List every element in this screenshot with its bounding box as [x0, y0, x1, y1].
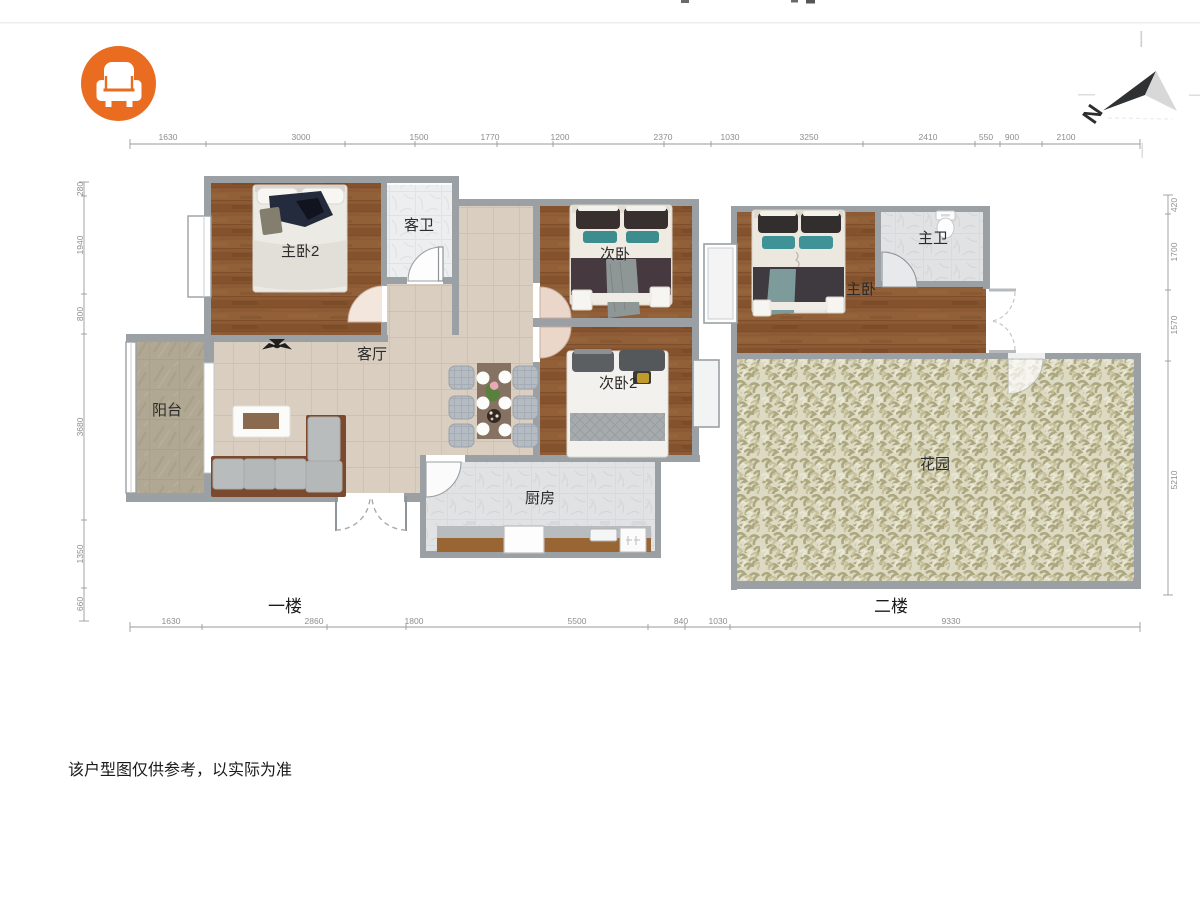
svg-text:900: 900 — [1005, 132, 1019, 142]
svg-text:1630: 1630 — [162, 616, 181, 626]
svg-text:1800: 1800 — [405, 616, 424, 626]
svg-text:次卧2: 次卧2 — [599, 375, 637, 392]
svg-text:二楼: 二楼 — [874, 597, 908, 616]
svg-text:次卧: 次卧 — [600, 246, 630, 263]
svg-text:840: 840 — [674, 616, 688, 626]
svg-text:2100: 2100 — [1057, 132, 1076, 142]
svg-text:5500: 5500 — [568, 616, 587, 626]
svg-text:3250: 3250 — [800, 132, 819, 142]
svg-text:660: 660 — [75, 597, 85, 611]
svg-text:花园: 花园 — [920, 456, 950, 473]
svg-text:阳台: 阳台 — [152, 402, 182, 419]
svg-text:N: N — [1077, 100, 1108, 129]
svg-text:2410: 2410 — [919, 132, 938, 142]
svg-text:3000: 3000 — [292, 132, 311, 142]
svg-text:该户型图仅供参考，以实际为准: 该户型图仅供参考，以实际为准 — [68, 761, 292, 779]
svg-text:1770: 1770 — [481, 132, 500, 142]
svg-text:9330: 9330 — [942, 616, 961, 626]
svg-text:1500: 1500 — [410, 132, 429, 142]
svg-text:550: 550 — [979, 132, 993, 142]
svg-text:一楼: 一楼 — [268, 597, 302, 616]
svg-text:420: 420 — [1169, 198, 1179, 212]
svg-text:1030: 1030 — [709, 616, 728, 626]
svg-text:1200: 1200 — [551, 132, 570, 142]
svg-text:1700: 1700 — [1169, 242, 1179, 261]
svg-text:主卧2: 主卧2 — [281, 243, 319, 260]
svg-text:3680: 3680 — [75, 417, 85, 436]
svg-text:客厅: 客厅 — [357, 346, 387, 363]
svg-text:主卫: 主卫 — [918, 230, 948, 247]
svg-text:2860: 2860 — [305, 616, 324, 626]
svg-text:厨房: 厨房 — [525, 490, 555, 507]
svg-text:1940: 1940 — [75, 235, 85, 254]
svg-text:1630: 1630 — [159, 132, 178, 142]
svg-text:1570: 1570 — [1169, 315, 1179, 334]
svg-text:280: 280 — [75, 182, 85, 196]
svg-text:5210: 5210 — [1169, 470, 1179, 489]
svg-text:800: 800 — [75, 307, 85, 321]
svg-text:1350: 1350 — [75, 544, 85, 563]
svg-text:2370: 2370 — [654, 132, 673, 142]
svg-text:客卫: 客卫 — [404, 217, 434, 234]
svg-text:主卧: 主卧 — [846, 281, 876, 298]
svg-text:1030: 1030 — [721, 132, 740, 142]
